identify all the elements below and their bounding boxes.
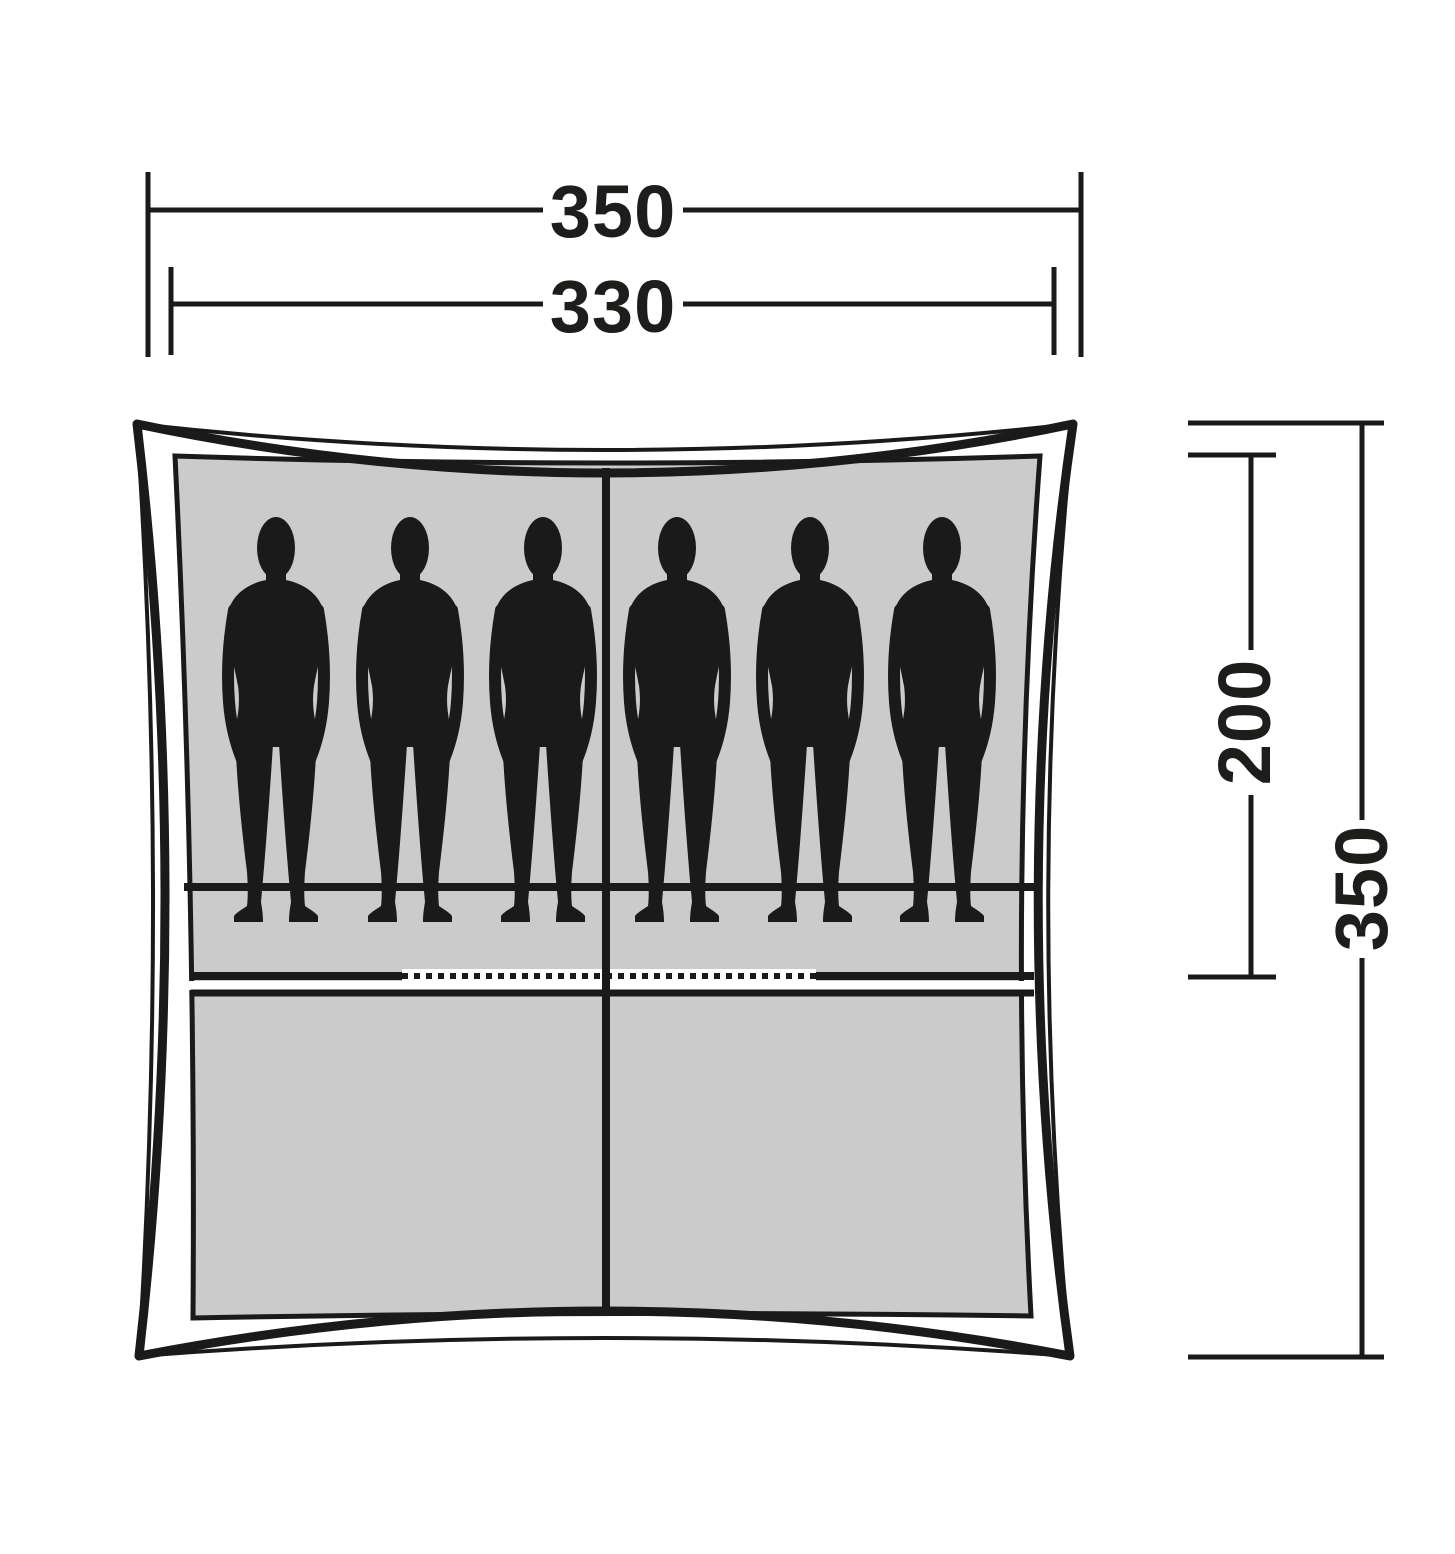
inner-depth-label: 200	[1203, 659, 1286, 785]
separation-white-band	[188, 981, 1036, 990]
side-inner-depth-dimension: 200	[1188, 455, 1286, 977]
top-inner-width-dimension: 330	[171, 265, 1054, 355]
tent-plan	[137, 424, 1073, 1356]
side-total-depth-dimension: 350	[1188, 423, 1403, 1357]
total-depth-label: 350	[1320, 825, 1403, 951]
total-width-label: 350	[550, 170, 676, 253]
tent-floorplan-diagram: 350 330 200 350	[0, 0, 1455, 1554]
inner-width-label: 330	[550, 265, 676, 348]
